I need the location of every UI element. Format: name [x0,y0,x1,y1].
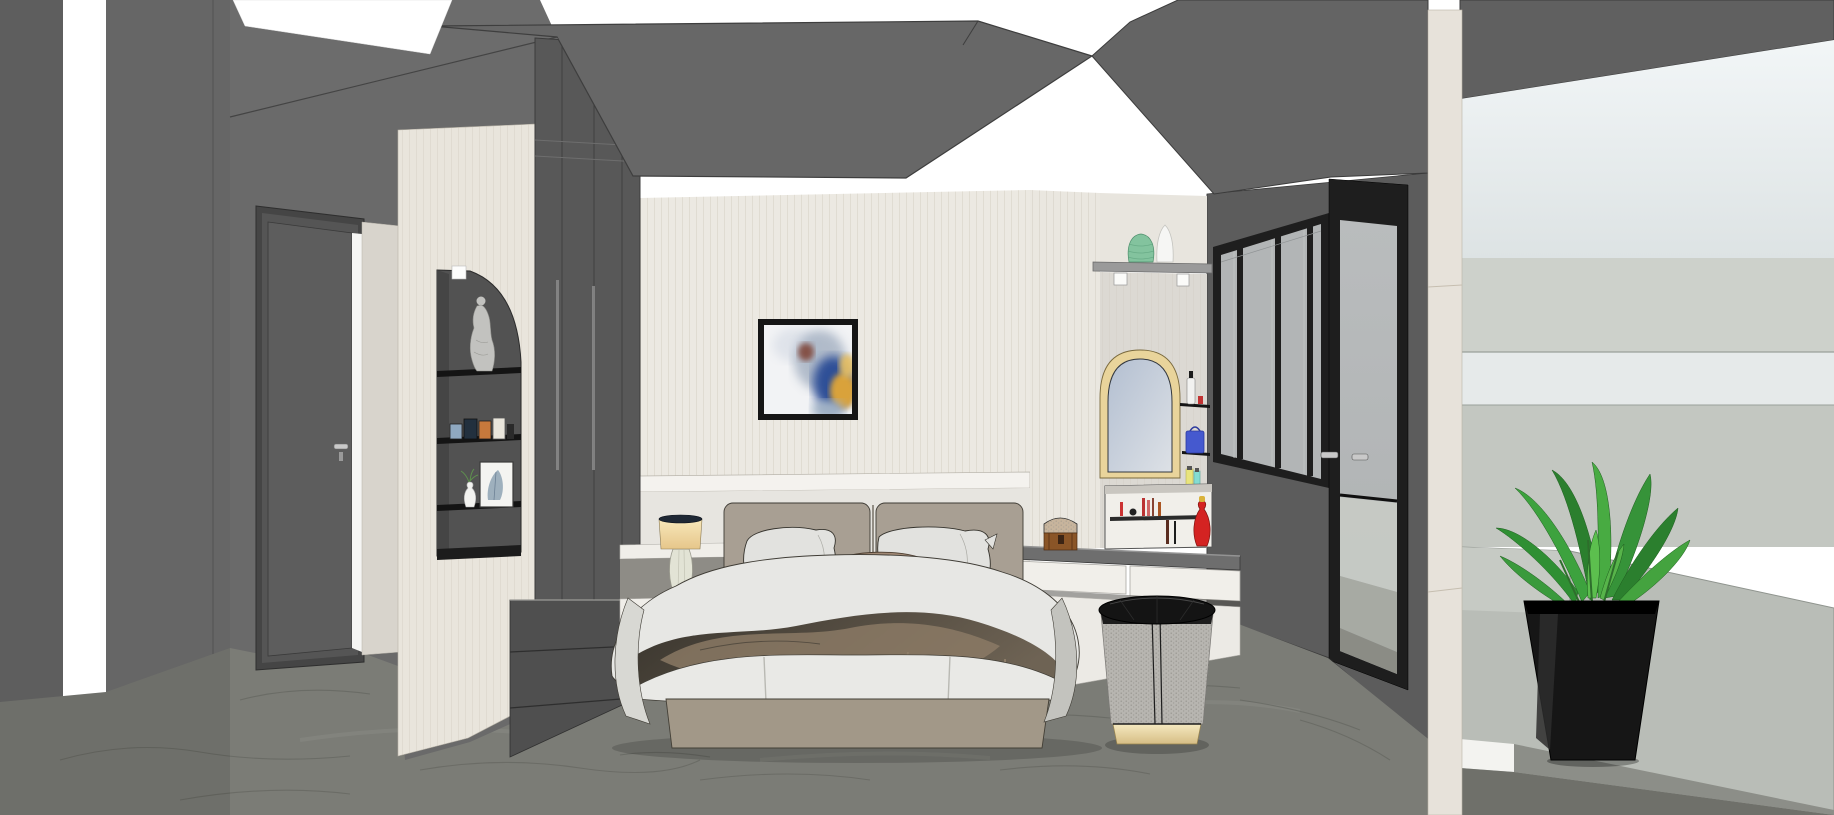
sliding-windows [1213,213,1329,488]
blue-bag [1186,427,1204,453]
balcony-railing-glass [1460,352,1834,405]
balcony-column [1428,10,1462,815]
door-handle [334,444,348,449]
abstract-painting [758,319,858,420]
interior-door [256,206,400,670]
stool-base [1113,724,1201,744]
door-light-gap [352,233,362,652]
botanical-print [480,462,513,507]
makeup-niche [1105,484,1212,549]
balcony-mid-wall [1460,405,1834,547]
balcony [1460,0,1834,815]
door-jamb [362,222,400,655]
window-mullion [1237,247,1243,460]
bed-base [666,699,1049,748]
foreground-wall-edge [0,0,63,815]
wardrobe-handle [556,280,559,470]
red-mini-bottle [1198,396,1203,404]
bedroom-render [0,0,1834,815]
door-leaf [268,222,352,656]
vanity-area [1030,190,1212,552]
window-mullion [1307,225,1313,477]
lamp-shade-rim [659,515,702,523]
makeup-brush [1166,520,1169,544]
mirror-glass [1108,359,1172,472]
wardrobe-handle [592,286,595,470]
glass-door [1321,179,1408,690]
arched-mirror [1100,350,1180,478]
spray-bottle [1187,378,1195,404]
jewelry-chest [1044,518,1077,550]
window-glass [1221,224,1321,479]
niche-light [452,266,466,279]
lamp-shade [659,519,702,549]
plant-pot [1524,601,1659,760]
vanity-stool [1099,596,1215,754]
render-canvas [0,0,1834,815]
window-mullion [1275,235,1281,469]
display-niche [437,266,521,560]
balcony-floor-light-strip [1460,739,1514,772]
display-shelf [1093,262,1212,273]
balcony-far-wall [1460,258,1834,352]
